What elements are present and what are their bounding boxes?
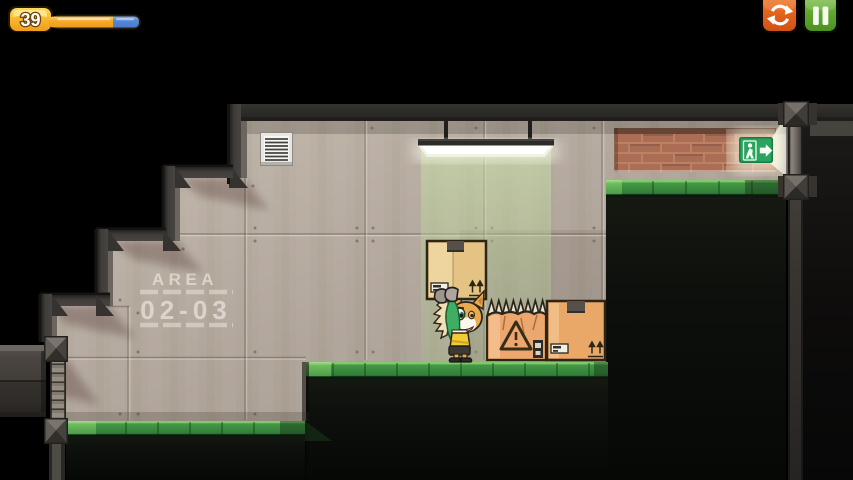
svg-text:39: 39 xyxy=(20,10,40,30)
svg-text:02-03: 02-03 xyxy=(140,295,232,325)
svg-text:AREA: AREA xyxy=(152,270,218,289)
